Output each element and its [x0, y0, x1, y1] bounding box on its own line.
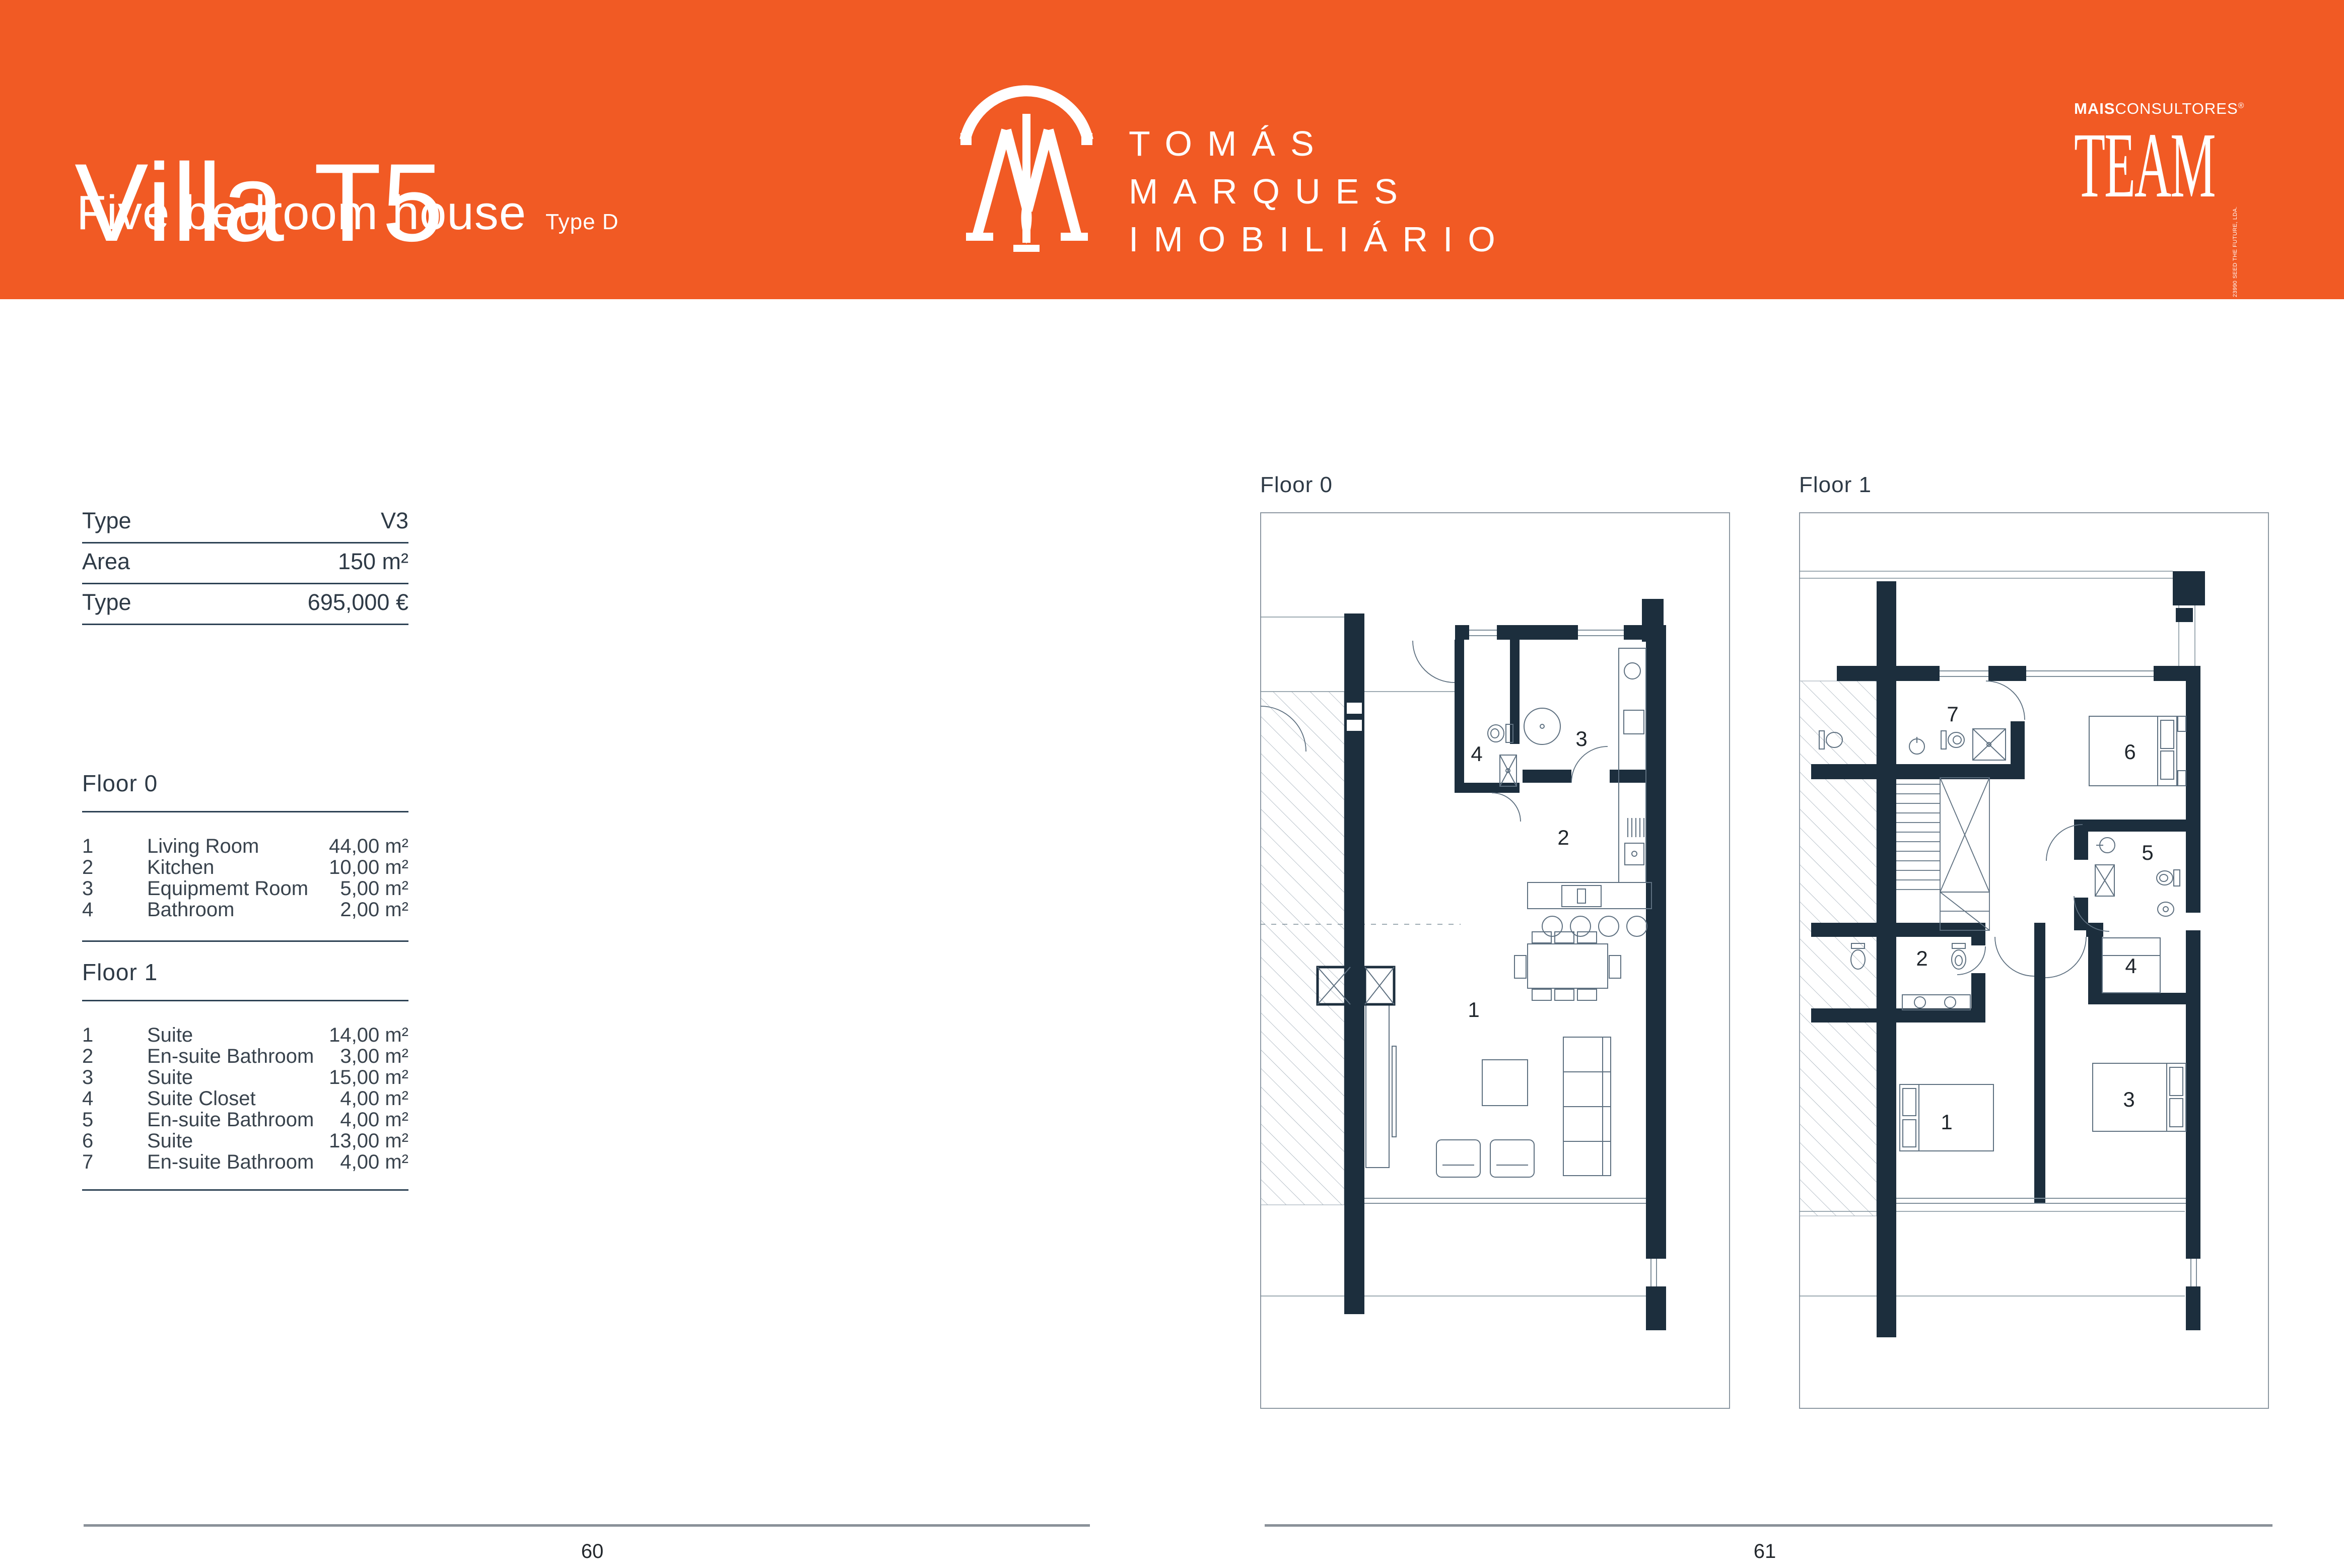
room-name: En-suite Bathroom: [147, 1151, 340, 1173]
floor-0-plan: 1234: [1260, 512, 1730, 1409]
floor-1-list-title: Floor 1: [82, 959, 408, 986]
window-openings: [1347, 630, 1657, 1286]
spec-row: Type695,000 €: [82, 584, 408, 625]
room-area: 5,00 m²: [340, 878, 408, 899]
room-name: Bathroom: [147, 899, 340, 920]
oven-icon: [1625, 843, 1644, 865]
room-name: Suite: [147, 1025, 329, 1046]
spec-row: Area150 m²: [82, 543, 408, 584]
room-area: 4,00 m²: [340, 1151, 408, 1173]
floor-1-list: Floor 1 1Suite14,00 m²2En-suite Bathroom…: [82, 959, 408, 1191]
spec-value: V3: [381, 508, 408, 534]
room-area: 13,00 m²: [329, 1130, 408, 1151]
coffee-table-icon: [1482, 1060, 1528, 1106]
sink-icon: [1624, 710, 1644, 734]
shelf-icon: [1563, 1037, 1611, 1176]
toilet-icon: [1488, 724, 1513, 742]
room-label: 1: [1468, 998, 1479, 1021]
stool-icon: [1542, 916, 1562, 936]
toilet-icon: [1952, 943, 1966, 969]
room-label: 6: [2124, 740, 2135, 764]
tm-monogram-icon: [951, 81, 1102, 254]
divider: [82, 811, 408, 812]
room-area: 4,00 m²: [340, 1109, 408, 1130]
room-label: 5: [2142, 841, 2153, 864]
room-number: 2: [82, 857, 147, 878]
spec-value: 150 m²: [338, 549, 408, 575]
divider: [82, 1189, 408, 1191]
floor-1-rows: 1Suite14,00 m²2En-suite Bathroom3,00 m²3…: [82, 1025, 408, 1173]
room-list-row: 2Kitchen10,00 m²: [82, 857, 408, 878]
room-number: 3: [82, 1067, 147, 1088]
room-label: 7: [1947, 702, 1958, 726]
hatch-area: [1800, 681, 1877, 1216]
stool-icon: [1627, 916, 1647, 936]
room-number: 1: [82, 1025, 147, 1046]
room-list-row: 2En-suite Bathroom3,00 m²: [82, 1046, 408, 1067]
shower-icon: [1500, 755, 1516, 786]
sink-icon: [2096, 838, 2115, 853]
brand-line-3: IMOBILIÁRIO: [1129, 216, 1510, 263]
spec-table: TypeV3Area150 m²Type695,000 €: [82, 503, 408, 625]
room-list-row: 4Suite Closet4,00 m²: [82, 1088, 408, 1109]
floor-0-list: Floor 0 1Living Room44,00 m²2Kitchen10,0…: [82, 770, 408, 942]
room-label: 2: [1916, 946, 1927, 970]
floor-0-list-title: Floor 0: [82, 770, 408, 797]
bed-icon: [2089, 716, 2186, 786]
footer-rule-right: [1265, 1524, 2272, 1527]
furniture: [1366, 648, 1651, 1177]
stairs-icon: [1896, 778, 1989, 930]
plan-1-caption: Floor 1: [1799, 472, 1872, 498]
page-subtitle: Five bedroom house Type D: [77, 185, 619, 241]
room-list-row: 3Suite15,00 m²: [82, 1067, 408, 1088]
divider: [82, 1000, 408, 1001]
kitchen-island-icon: [1528, 882, 1651, 909]
counter-icon: [1619, 648, 1646, 882]
room-list-row: 7En-suite Bathroom4,00 m²: [82, 1151, 408, 1173]
page-number-left: 60: [572, 1540, 612, 1563]
room-list-row: 6Suite13,00 m²: [82, 1130, 408, 1151]
room-label: 4: [2125, 954, 2136, 978]
room-label: 4: [1471, 742, 1482, 766]
room-list-row: 1Living Room44,00 m²: [82, 836, 408, 857]
walls: [1344, 599, 1666, 1330]
wardrobe-icon: [1366, 1004, 1389, 1168]
room-name: Equipmemt Room: [147, 878, 340, 899]
room-label: 3: [2123, 1087, 2134, 1111]
sink-icon: [1909, 737, 1924, 754]
armchair-icon: [1490, 1140, 1534, 1177]
room-number: 5: [82, 1109, 147, 1130]
room-label: 3: [1575, 727, 1587, 751]
floor-1-plan: 1234567: [1799, 512, 2269, 1409]
sink-icon: [1624, 663, 1640, 679]
shower-icon: [1973, 729, 2006, 760]
stove-icon: [1628, 818, 1644, 837]
tv-icon: [1392, 1046, 1396, 1137]
spec-value: 695,000 €: [308, 589, 408, 616]
room-name: Kitchen: [147, 857, 329, 878]
dining-table-icon: [1514, 932, 1621, 1000]
divider: [82, 940, 408, 942]
room-list-row: 4Bathroom2,00 m²: [82, 899, 408, 920]
room-number: 7: [82, 1151, 147, 1173]
team-logo: MAISCONSULTORES® TEAM AMI: 23990 SEED TH…: [2074, 100, 2255, 212]
washer-icon: [1524, 708, 1560, 744]
window-openings: [1896, 671, 2200, 1286]
room-area: 10,00 m²: [329, 857, 408, 878]
room-area: 14,00 m²: [329, 1025, 408, 1046]
brand-wordmark: TOMÁS MARQUES IMOBILIÁRIO: [1129, 120, 1510, 263]
footer-rule-left: [84, 1524, 1090, 1527]
subtitle-text: Five bedroom house: [77, 185, 526, 241]
toilet-icon: [1941, 731, 1964, 749]
room-name: En-suite Bathroom: [147, 1109, 340, 1130]
room-name: Living Room: [147, 836, 329, 857]
room-name: Suite Closet: [147, 1088, 340, 1109]
type-tag: Type D: [545, 210, 618, 235]
room-number: 2: [82, 1046, 147, 1067]
room-label: 1: [1941, 1110, 1952, 1134]
room-name: Suite: [147, 1130, 329, 1151]
room-area: 15,00 m²: [329, 1067, 408, 1088]
floor-0-rows: 1Living Room44,00 m²2Kitchen10,00 m²3Equ…: [82, 836, 408, 920]
plan-0-caption: Floor 0: [1260, 472, 1333, 498]
room-name: En-suite Bathroom: [147, 1046, 340, 1067]
room-area: 3,00 m²: [340, 1046, 408, 1067]
spec-label: Area: [82, 549, 130, 575]
shower-icon: [2095, 865, 2114, 896]
team-logo-wordmark: TEAM: [2074, 119, 2174, 212]
room-area: 4,00 m²: [340, 1088, 408, 1109]
room-number: 3: [82, 878, 147, 899]
brand-line-1: TOMÁS: [1129, 120, 1510, 168]
room-label: 2: [1557, 826, 1569, 849]
room-number: 4: [82, 1088, 147, 1109]
toilet-icon: [2157, 870, 2180, 886]
bed-icon: [2093, 1063, 2186, 1131]
room-list-row: 3Equipmemt Room5,00 m²: [82, 878, 408, 899]
team-logo-side-text: AMI: 23990 SEED THE FUTURE, LDA.: [2232, 216, 2238, 311]
room-number: 4: [82, 899, 147, 920]
spec-row: TypeV3: [82, 503, 408, 543]
sink-icon: [1902, 995, 1970, 1010]
room-number: 1: [82, 836, 147, 857]
room-area: 2,00 m²: [340, 899, 408, 920]
hatch-area: [1261, 692, 1344, 1205]
brand-line-2: MARQUES: [1129, 168, 1510, 216]
spec-label: Type: [82, 589, 131, 616]
spec-label: Type: [82, 508, 131, 534]
room-list-row: 1Suite14,00 m²: [82, 1025, 408, 1046]
room-name: Suite: [147, 1067, 329, 1088]
bidet-icon: [2158, 902, 2174, 916]
page-number-right: 61: [1745, 1540, 1785, 1563]
room-list-row: 5En-suite Bathroom4,00 m²: [82, 1109, 408, 1130]
stool-icon: [1599, 916, 1619, 936]
room-number: 6: [82, 1130, 147, 1151]
armchair-icon: [1436, 1140, 1480, 1177]
header-banner: Villa T5 Five bedroom house Type D TOMÁS…: [0, 0, 2344, 299]
room-area: 44,00 m²: [329, 836, 408, 857]
